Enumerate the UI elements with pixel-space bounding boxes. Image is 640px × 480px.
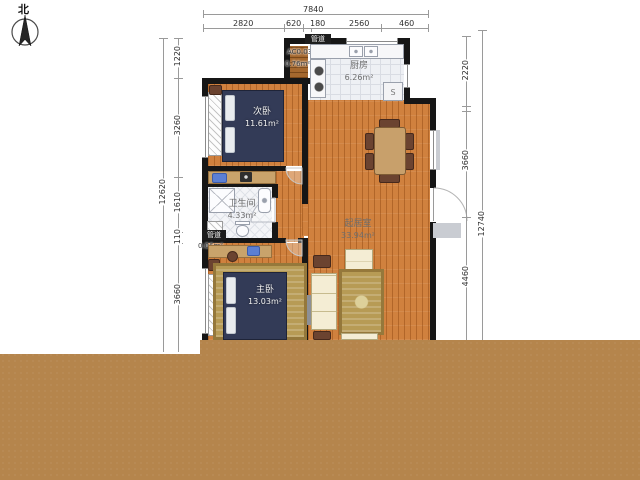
room-label-master-bedroom: 主卧 13.03m²: [230, 284, 300, 308]
sofa-icon: [311, 273, 337, 330]
dim-right-seg: 4460: [461, 265, 470, 287]
dim-top-seg: 620: [285, 19, 302, 28]
dim-top-total: 7840: [302, 5, 324, 14]
stove-icon: [310, 59, 326, 98]
dim-left-seg: 1220: [173, 45, 182, 67]
dining-chair-icon: [379, 174, 400, 183]
dim-top-seg: 2820: [232, 19, 254, 28]
dim-tick: [478, 30, 487, 31]
side-table-icon: [313, 331, 331, 340]
room-area: 33.94m²: [326, 230, 390, 242]
room-label-secondary-bedroom: 次卧 11.61m²: [226, 106, 298, 130]
dim-tick: [462, 106, 471, 107]
wall: [272, 184, 278, 198]
dim-right-seg: 2220: [461, 59, 470, 81]
nightstand-icon: [209, 85, 222, 95]
laptop-icon: [240, 172, 252, 182]
dim-right-seg: 3660: [461, 149, 470, 171]
floorplan-canvas: 次卧 11.61m² 管道 AC0.03m² 0.76m² S 厨房 6.26m…: [0, 0, 640, 480]
dining-chair-icon: [405, 153, 414, 170]
wall: [430, 222, 436, 340]
wall: [430, 104, 436, 130]
toilet-icon: [236, 225, 249, 237]
room-area: 4.33m²: [212, 210, 272, 222]
window: [404, 64, 410, 88]
dim-left-seg: 3260: [173, 114, 182, 136]
dining-chair-icon: [405, 133, 414, 150]
dim-tick: [428, 10, 429, 18]
room-name: 次卧: [226, 106, 298, 118]
dim-line: [203, 14, 428, 15]
window-sill: [436, 130, 440, 170]
dim-top-seg: 2560: [348, 19, 370, 28]
wardrobe-icon: [208, 92, 222, 156]
room-label-living-room: 起居室 33.94m²: [326, 218, 390, 242]
wall: [208, 184, 274, 187]
duct-tag-text: 管道: [311, 35, 325, 43]
wall: [272, 222, 278, 238]
room-label-bathroom: 卫生间 4.33m²: [212, 198, 272, 222]
desk-chair-icon: [227, 251, 238, 262]
entry-landing: [433, 223, 461, 238]
room-area: 13.03m²: [230, 296, 300, 308]
tv-icon: [307, 295, 311, 325]
room-label-kitchen: 厨房 6.26m²: [328, 60, 390, 84]
dim-right-total: 12740: [477, 210, 486, 237]
dim-tick: [203, 10, 204, 18]
bottom-band-notch: [0, 340, 200, 354]
dim-line: [466, 36, 467, 340]
wall: [404, 38, 410, 64]
room-area: 6.26m²: [328, 72, 390, 84]
dim-left-seg: 1610: [173, 191, 182, 213]
dim-left-total: 12620: [158, 178, 167, 205]
dim-tick: [303, 24, 304, 32]
dim-left-seg: 110: [173, 228, 182, 245]
plan-area: 次卧 11.61m² 管道 AC0.03m² 0.76m² S 厨房 6.26m…: [0, 0, 640, 340]
sofa-icon: [341, 333, 378, 340]
room-name: 厨房: [328, 60, 390, 72]
entry-door-leaf: [433, 188, 434, 221]
fridge-icon: S: [383, 82, 403, 101]
hallway-floor: [276, 171, 304, 242]
duct-note-area: 0.76m²: [285, 60, 310, 68]
dim-tick: [174, 177, 183, 178]
kitchen-sink-icon: [349, 46, 363, 57]
duct-tag-text: 管道: [207, 231, 221, 239]
side-table-icon: [313, 255, 331, 268]
duct-tag: 管道: [202, 230, 226, 240]
room-name: 主卧: [230, 284, 300, 296]
room-name: 起居室: [326, 218, 390, 230]
dim-line: [482, 30, 483, 340]
dim-tick: [174, 38, 183, 39]
kitchen-sink-icon: [364, 46, 378, 57]
compass-icon: [6, 13, 44, 51]
hallway-opening-floor: [302, 204, 308, 236]
fridge-label: S: [390, 88, 395, 97]
compass: 北: [6, 0, 50, 52]
duct-tag: 管道: [305, 34, 331, 44]
dim-top-seg: 180: [309, 19, 326, 28]
bottom-band: [0, 340, 640, 480]
wall: [430, 170, 436, 188]
rug-icon: [339, 269, 384, 335]
basin-icon: [212, 173, 227, 183]
dining-table-icon: [374, 127, 406, 175]
dim-left-seg: 3660: [173, 283, 182, 305]
desk-counter: [208, 245, 272, 258]
laptop-icon: [247, 246, 260, 256]
dim-tick: [203, 24, 204, 32]
room-area: 11.61m²: [226, 118, 298, 130]
dim-tick: [462, 111, 471, 112]
dim-tick: [428, 24, 429, 32]
wall: [302, 78, 308, 204]
armchair-icon: [345, 249, 373, 270]
dim-tick: [462, 217, 471, 218]
dining-chair-icon: [365, 133, 374, 150]
dim-tick: [462, 36, 471, 37]
dim-tick: [159, 38, 168, 39]
dim-tick: [174, 78, 183, 79]
dim-tick: [381, 24, 382, 32]
dim-top-seg: 460: [398, 19, 415, 28]
wall: [202, 78, 310, 84]
dim-line: [203, 28, 428, 29]
room-name: 卫生间: [212, 198, 272, 210]
dining-chair-icon: [365, 153, 374, 170]
